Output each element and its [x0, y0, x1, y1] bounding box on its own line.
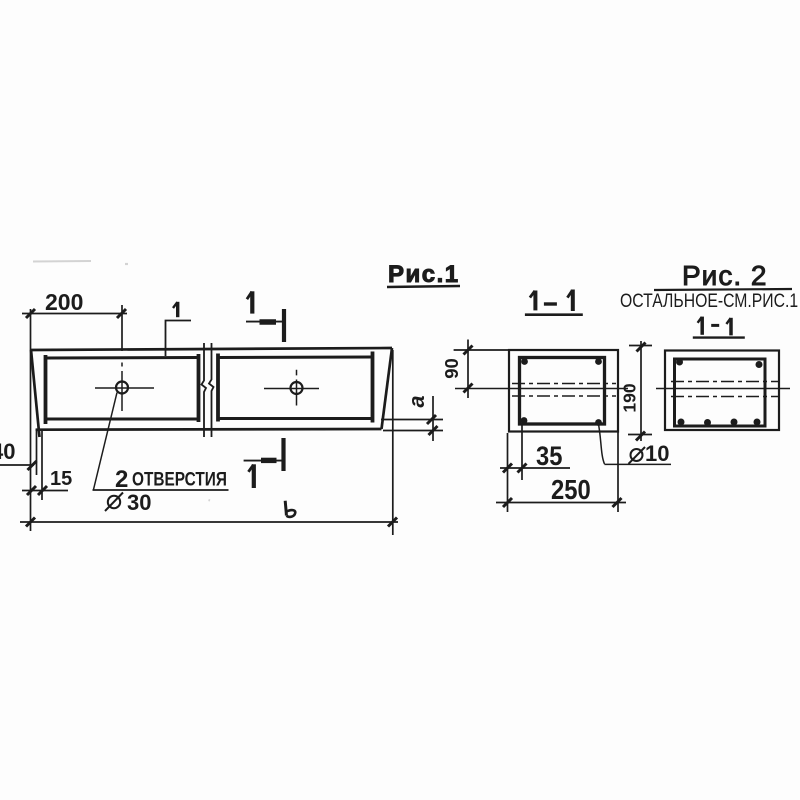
svg-text:250: 250: [551, 473, 591, 505]
svg-text:Рис. 2: Рис. 2: [682, 260, 767, 291]
svg-text:10: 10: [645, 441, 669, 466]
svg-text:30: 30: [127, 490, 151, 515]
svg-text:35: 35: [536, 442, 562, 472]
svg-text:40: 40: [0, 439, 15, 464]
svg-text:a: a: [404, 395, 429, 407]
svg-text:ОСТАЛЬНОЕ-СМ.РИС.1: ОСТАЛЬНОЕ-СМ.РИС.1: [620, 290, 798, 312]
svg-text:ОТВЕРСТИЯ: ОТВЕРСТИЯ: [132, 468, 227, 490]
svg-text:190: 190: [620, 383, 640, 412]
svg-text:15: 15: [50, 468, 72, 490]
svg-text:90: 90: [441, 358, 462, 379]
svg-text:200: 200: [45, 289, 83, 315]
svg-text:Рис.1: Рис.1: [388, 261, 460, 288]
svg-text:2: 2: [115, 466, 128, 493]
